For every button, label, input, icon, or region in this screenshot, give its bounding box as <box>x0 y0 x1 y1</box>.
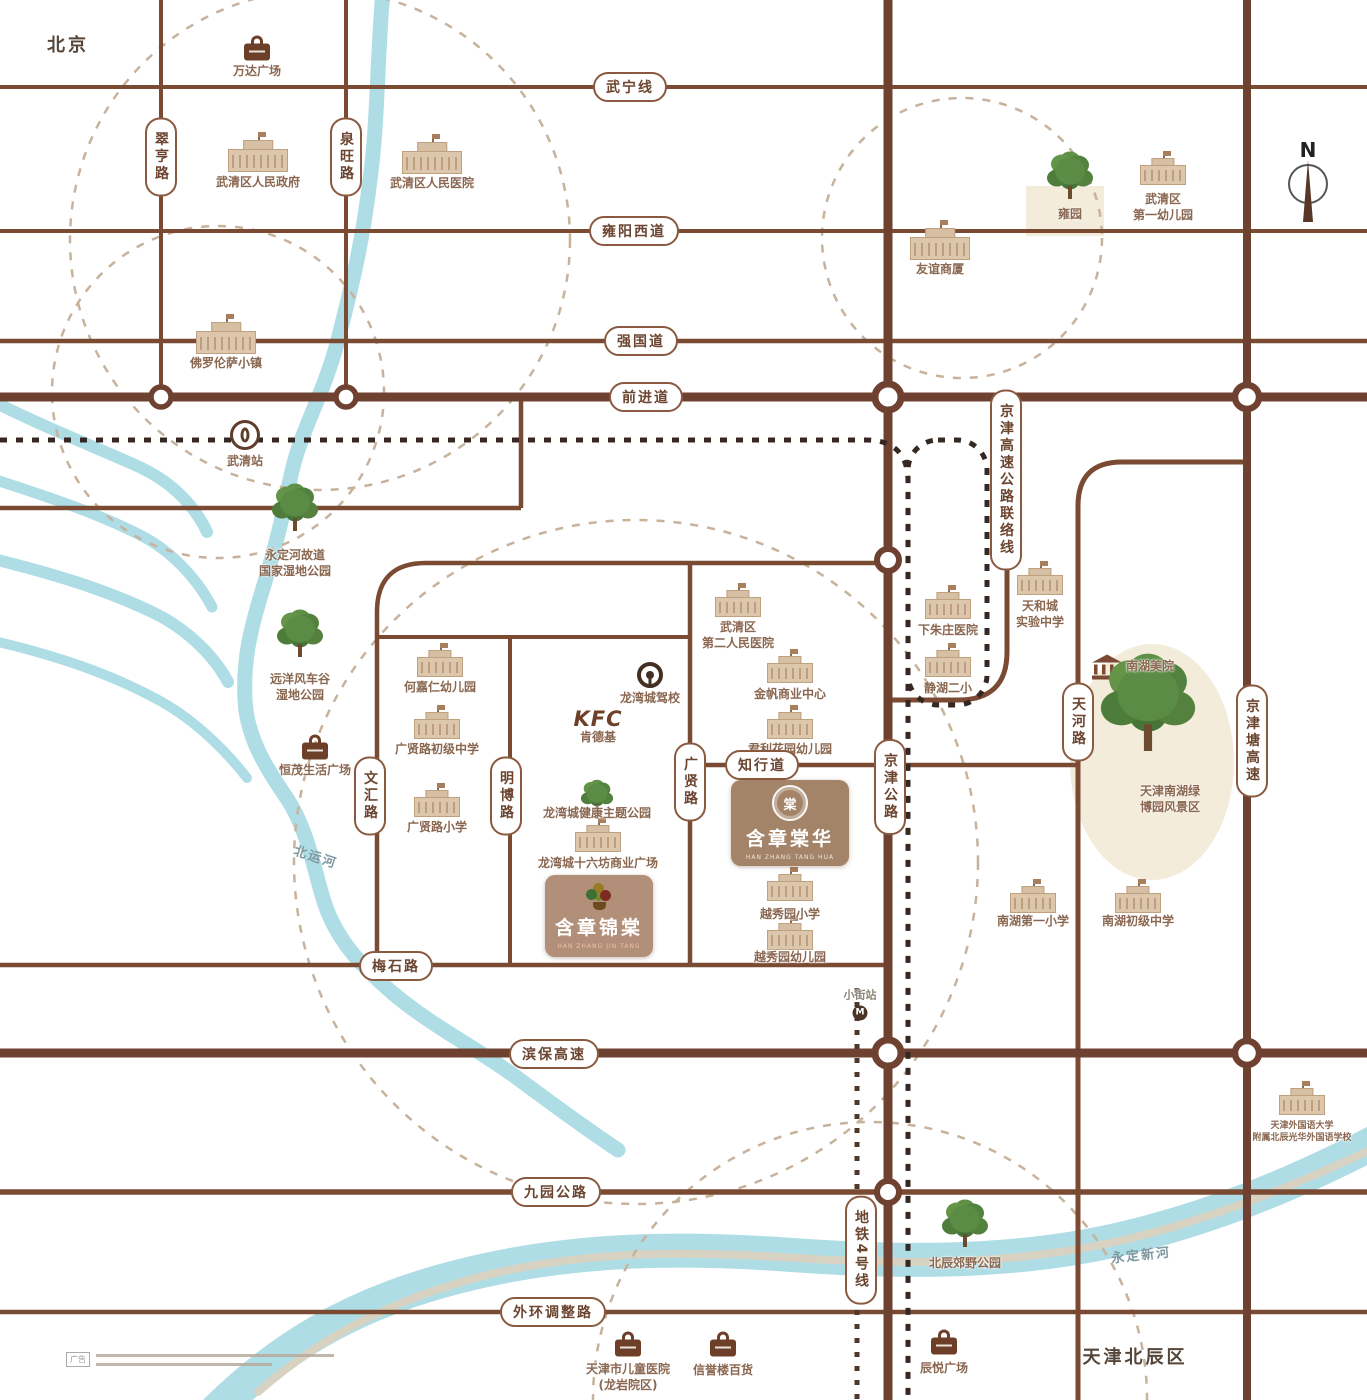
poi-label: 信誉楼百货 <box>693 1363 753 1379</box>
shopping-bag-icon <box>244 36 270 61</box>
map-poi <box>910 220 970 260</box>
map-poi <box>1126 705 1170 751</box>
brand-subtitle: HAN ZHANG JIN TANG <box>557 943 640 950</box>
shopping-bag-icon <box>710 1332 736 1357</box>
poi-label: 龙湾城十六坊商业广场 <box>538 856 658 872</box>
map-poi <box>414 783 460 817</box>
steering-wheel-icon <box>637 662 663 688</box>
building-icon <box>925 643 971 677</box>
poi-label: 天津南湖绿博园风景区 <box>1140 784 1200 815</box>
poi-label: 万达广场 <box>233 64 281 80</box>
map-poi <box>1017 561 1063 595</box>
map-poi: KFC <box>573 707 622 731</box>
road-pill: 前进道 <box>609 382 683 412</box>
map-poi <box>1115 879 1161 913</box>
map-poi <box>417 643 463 677</box>
poi-label: 北辰郊野公园 <box>929 1256 1001 1272</box>
brand-name: 含章锦棠 <box>555 913 643 940</box>
tree-icon <box>943 1201 987 1247</box>
road-pill: 外环调整路 <box>500 1297 606 1327</box>
compass-circle <box>1288 164 1328 204</box>
map-poi <box>196 314 256 354</box>
river-label: 永定新河 <box>1110 1241 1172 1266</box>
building-icon <box>767 705 813 739</box>
building-icon <box>1279 1081 1325 1115</box>
map-poi <box>230 420 260 450</box>
road-pill: 强国道 <box>604 326 678 356</box>
map-poi <box>1140 151 1186 185</box>
disclaimer-text-line <box>96 1363 272 1366</box>
map-poi <box>273 485 317 531</box>
map-poi <box>767 705 813 739</box>
road-pill: 广贤路 <box>674 743 706 822</box>
road-pill: 武宁线 <box>593 72 667 102</box>
compass-needle-icon <box>1303 160 1313 222</box>
building-icon <box>1017 561 1063 595</box>
poi-label: 远洋风车谷湿地公园 <box>270 672 330 703</box>
map-poi <box>767 649 813 683</box>
road-pill: 京津塘高速 <box>1236 685 1268 798</box>
disclaimer-strip: 广告 <box>0 1344 480 1384</box>
location-map: 武宁线雍阳西道强国道前进道翠亨路泉旺路文汇路明博路广贤路知行道京津公路京津高速公… <box>0 0 1367 1400</box>
building-icon <box>196 314 256 354</box>
compass-north-label: N <box>1288 138 1328 162</box>
poi-label: 龙湾城健康主题公园 <box>543 806 651 822</box>
poi-label: 武清站 <box>227 454 263 470</box>
poi-label: 南湖美院 <box>1126 659 1174 675</box>
map-poi <box>228 132 288 172</box>
poi-label: 广贤路初级中学 <box>395 742 479 758</box>
poi-label: 永定河故道国家湿地公园 <box>259 548 331 579</box>
poi-label: 龙湾城驾校 <box>620 691 680 707</box>
disclaimer-text-line <box>96 1354 334 1357</box>
brand-emblem-icon: 棠 <box>772 785 808 821</box>
map-poi <box>244 36 270 61</box>
brand-subtitle: HAN ZHANG TANG HUA <box>746 854 834 861</box>
map-poi <box>302 735 328 760</box>
poi-label: 静湖二小 <box>924 681 972 697</box>
building-icon <box>925 585 971 619</box>
map-poi <box>575 818 621 852</box>
tree-icon <box>1048 153 1092 199</box>
map-poi <box>943 1201 987 1247</box>
building-icon <box>767 649 813 683</box>
map-poi: M <box>853 1006 868 1021</box>
building-icon <box>402 134 462 174</box>
ad-label: 广告 <box>66 1352 90 1367</box>
poi-label: 天和城实验中学 <box>1016 599 1064 630</box>
building-icon <box>1010 879 1056 913</box>
poi-label: 武清区人民政府 <box>216 175 300 191</box>
brand-box: 棠含章棠华HAN ZHANG TANG HUA <box>731 780 849 866</box>
poi-label: 下朱庄医院 <box>918 623 978 639</box>
map-poi <box>1048 153 1092 199</box>
road-pill: 滨保高速 <box>509 1039 599 1069</box>
river-label: 北运河 <box>292 840 341 872</box>
map-poi <box>414 705 460 739</box>
road-pill: 梅石路 <box>359 951 433 981</box>
poi-label: 武清区人民医院 <box>390 176 474 192</box>
tree-icon <box>278 611 322 657</box>
poi-label: 天津外国语大学附属北辰光华外国语学校 <box>1252 1121 1351 1144</box>
shopping-bag-icon <box>931 1330 957 1355</box>
shopping-bag-icon <box>615 1332 641 1357</box>
poi-label: 肯德基 <box>580 730 616 746</box>
road-pill: 九园公路 <box>511 1177 601 1207</box>
brand-name: 含章棠华 <box>746 824 834 851</box>
building-icon <box>910 220 970 260</box>
poi-label: 雍园 <box>1058 207 1082 223</box>
map-poi <box>615 1332 641 1357</box>
road-pill: 天河路 <box>1062 683 1094 762</box>
map-labels-layer: 武宁线雍阳西道强国道前进道翠亨路泉旺路文汇路明博路广贤路知行道京津公路京津高速公… <box>0 0 1367 1400</box>
brand-emblem-icon <box>583 883 615 910</box>
kfc-logo: KFC <box>573 707 622 731</box>
map-poi <box>710 1332 736 1357</box>
region-label: 北京 <box>47 31 89 57</box>
metro-station-icon: M <box>853 1006 868 1021</box>
poi-label: 金帆商业中心 <box>754 687 826 703</box>
building-icon <box>575 818 621 852</box>
road-pill: 翠亨路 <box>145 118 177 197</box>
road-pill: 知行道 <box>725 750 799 780</box>
map-poi <box>931 1330 957 1355</box>
road-pill: 京津高速公路联络线 <box>990 390 1022 571</box>
building-icon <box>414 783 460 817</box>
building-icon <box>767 867 813 901</box>
map-poi <box>1279 1081 1325 1115</box>
poi-label: 越秀园小学 <box>760 907 820 923</box>
brand-box: 含章锦棠HAN ZHANG JIN TANG <box>545 875 653 957</box>
map-poi <box>715 583 761 617</box>
map-poi <box>767 867 813 901</box>
map-poi <box>925 643 971 677</box>
building-icon <box>1115 879 1161 913</box>
road-pill: 文汇路 <box>354 757 386 836</box>
poi-label: 广贤路小学 <box>407 820 467 836</box>
road-pill: 明博路 <box>490 757 522 836</box>
map-poi <box>637 662 663 688</box>
poi-label: 友谊商厦 <box>916 262 964 278</box>
poi-label: 武清区第二人民医院 <box>702 620 774 651</box>
region-label: 天津北辰区 <box>1083 1343 1188 1369</box>
shopping-bag-icon <box>302 735 328 760</box>
compass: N <box>1288 138 1328 204</box>
poi-label: 天津市儿童医院(龙岩院区) <box>586 1362 670 1393</box>
building-icon <box>417 643 463 677</box>
poi-label: 武清区第一幼儿园 <box>1133 192 1193 223</box>
map-poi <box>925 585 971 619</box>
poi-label: 南湖初级中学 <box>1102 914 1174 930</box>
map-poi <box>278 611 322 657</box>
tree-icon <box>273 485 317 531</box>
building-icon <box>414 705 460 739</box>
road-pill: 京津公路 <box>874 739 906 835</box>
building-icon <box>715 583 761 617</box>
poi-label: 佛罗伦萨小镇 <box>190 356 262 372</box>
poi-label: 越秀园幼儿园 <box>754 950 826 966</box>
poi-label: 何嘉仁幼儿园 <box>404 680 476 696</box>
road-pill: 地铁4号线 <box>845 1196 877 1305</box>
poi-label: 恒茂生活广场 <box>279 763 351 779</box>
map-poi <box>402 134 462 174</box>
building-icon <box>228 132 288 172</box>
road-pill: 泉旺路 <box>330 118 362 197</box>
building-icon <box>1140 151 1186 185</box>
poi-label: 小街站 <box>844 989 877 1003</box>
map-poi <box>1010 879 1056 913</box>
poi-label: 南湖第一小学 <box>997 914 1069 930</box>
railway-station-icon <box>230 420 260 450</box>
poi-label: 辰悦广场 <box>920 1361 968 1377</box>
road-pill: 雍阳西道 <box>589 216 679 246</box>
